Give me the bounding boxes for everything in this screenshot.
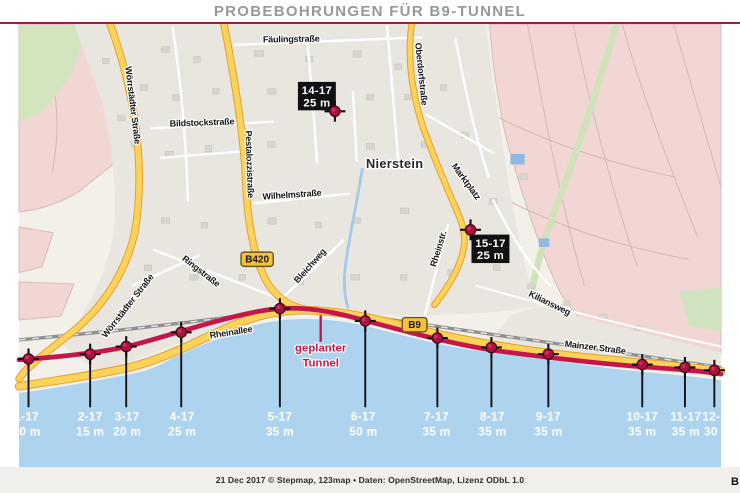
building — [493, 265, 500, 271]
borehole-depth-8-17: 35 m — [478, 425, 506, 439]
borehole-depth-11-17: 35 m — [672, 425, 700, 439]
building — [201, 222, 208, 228]
town-label-nierstein: Nierstein — [366, 156, 423, 171]
building — [353, 51, 362, 58]
building — [315, 222, 322, 228]
tunnel-callout-text: geplanter — [295, 342, 347, 354]
borehole-depth-12-17: 30 m — [704, 425, 732, 439]
borehole-id-12-17: 12-17 — [702, 410, 734, 424]
borehole-id-6-17: 6-17 — [351, 410, 376, 424]
borehole-id-3-17: 3-17 — [115, 410, 140, 424]
building — [268, 89, 277, 95]
borehole-depth-6-17: 50 m — [349, 425, 377, 439]
borehole-id-1-17: 1-17 — [14, 410, 39, 424]
borehole-id-10-17: 10-17 — [626, 410, 658, 424]
infographic-page: PROBEBOHRUNGEN FÜR B9-TUNNEL — [0, 0, 740, 493]
building — [400, 274, 407, 280]
borehole-id-9-17: 9-17 — [536, 410, 561, 424]
borehole-id-8-17: 8-17 — [480, 410, 505, 424]
borehole-id-5-17: 5-17 — [267, 410, 292, 424]
borehole-depth-7-17: 35 m — [422, 425, 450, 439]
borehole-depth-1-17: 10 m — [13, 425, 41, 439]
building — [520, 174, 528, 180]
borehole-depth-4-17: 25 m — [168, 425, 196, 439]
borehole-depth-3-17: 20 m — [113, 425, 141, 439]
borehole-depth-10-17: 35 m — [628, 425, 656, 439]
road-badge-text: B9 — [408, 320, 421, 331]
map-credit: 21 Dec 2017 © Stepmap, 123map • Daten: O… — [216, 475, 524, 485]
building — [140, 85, 148, 91]
building — [102, 58, 109, 64]
borehole-depth-9-17: 35 m — [534, 425, 562, 439]
title-bar: PROBEBOHRUNGEN FÜR B9-TUNNEL — [0, 0, 740, 24]
building — [144, 265, 152, 271]
building — [440, 85, 447, 91]
borehole-depth-14-17: 25 m — [303, 98, 330, 110]
footer-right-fragment: B — [731, 476, 739, 488]
borehole-id-11-17: 11-17 — [670, 410, 701, 424]
borehole-depth-5-17: 35 m — [266, 425, 294, 439]
building — [395, 64, 402, 70]
building — [194, 56, 201, 63]
street-label-f-ulingstra-e: Fäulingstraße — [263, 34, 320, 45]
building — [161, 218, 170, 224]
building — [268, 142, 276, 148]
map: geplanterTunnel B420B9 FäulingstraßeWörr… — [0, 24, 740, 467]
borehole-depth-15-17: 25 m — [477, 250, 504, 262]
building — [239, 274, 246, 280]
building — [400, 208, 409, 214]
road-badge-text: B420 — [245, 255, 269, 266]
building — [351, 274, 360, 280]
building — [268, 218, 277, 225]
building — [366, 144, 375, 150]
borehole-id-2-17: 2-17 — [78, 410, 103, 424]
building — [173, 94, 182, 101]
borehole-id-14-17: 14-17 — [302, 85, 333, 97]
building — [118, 115, 126, 121]
building — [190, 274, 199, 280]
building — [254, 51, 263, 57]
borehole-id-4-17: 4-17 — [170, 410, 195, 424]
borehole-id-15-17: 15-17 — [475, 238, 506, 250]
building — [213, 89, 220, 95]
page-title: PROBEBOHRUNGEN FÜR B9-TUNNEL — [214, 3, 526, 20]
tunnel-callout-text: Tunnel — [302, 357, 338, 369]
building — [161, 47, 170, 53]
borehole-depth-2-17: 15 m — [76, 425, 104, 439]
footer: 21 Dec 2017 © Stepmap, 123map • Daten: O… — [0, 467, 740, 493]
building — [366, 94, 374, 100]
building — [205, 145, 212, 152]
borehole-id-7-17: 7-17 — [424, 410, 449, 424]
